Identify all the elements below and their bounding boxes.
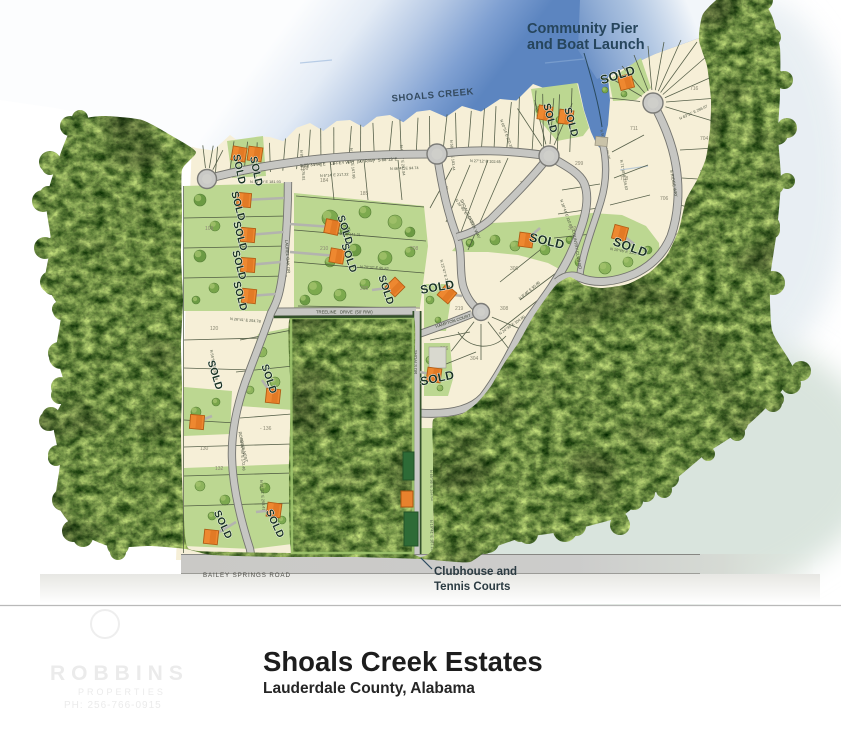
svg-text:304: 304 — [470, 356, 479, 362]
svg-text:Shoals Creek Estates: Shoals Creek Estates — [263, 646, 543, 677]
svg-text:706: 706 — [660, 196, 669, 202]
svg-text:Community Pier: Community Pier — [527, 21, 639, 37]
svg-text:704: 704 — [700, 136, 709, 142]
svg-text:208: 208 — [410, 246, 419, 252]
svg-text:708: 708 — [620, 176, 629, 182]
svg-text:and Boat Launch: and Boat Launch — [527, 37, 645, 53]
svg-text:PROPERTIES: PROPERTIES — [78, 687, 166, 697]
svg-text:185: 185 — [360, 191, 369, 197]
svg-text:BAILEY SPRINGS ROAD: BAILEY SPRINGS ROAD — [203, 572, 291, 579]
svg-text:184: 184 — [320, 178, 329, 184]
svg-text:306: 306 — [510, 266, 519, 272]
svg-text:132: 132 — [215, 466, 224, 472]
svg-text:120: 120 — [210, 326, 219, 332]
svg-text:- 136: - 136 — [260, 426, 272, 432]
svg-text:TREELINE DRIVE (50′ R/W): TREELINE DRIVE (50′ R/W) — [316, 310, 373, 315]
svg-text:716: 716 — [690, 86, 699, 92]
svg-text:Tennis Courts: Tennis Courts — [434, 581, 510, 593]
svg-text:299: 299 — [575, 161, 584, 167]
svg-text:PH: 256-766-0915: PH: 256-766-0915 — [64, 700, 162, 711]
svg-text:Lauderdale County, Alabama: Lauderdale County, Alabama — [263, 680, 475, 697]
svg-text:711: 711 — [630, 126, 638, 132]
svg-text:Clubhouse and: Clubhouse and — [434, 566, 517, 578]
svg-text:308: 308 — [500, 306, 509, 312]
svg-text:210: 210 — [320, 246, 329, 252]
svg-text:ROBBINS: ROBBINS — [50, 662, 189, 685]
svg-text:130: 130 — [200, 446, 209, 452]
svg-text:219: 219 — [455, 306, 464, 312]
svg-text:206: 206 — [360, 286, 369, 292]
svg-text:109: 109 — [205, 226, 214, 232]
